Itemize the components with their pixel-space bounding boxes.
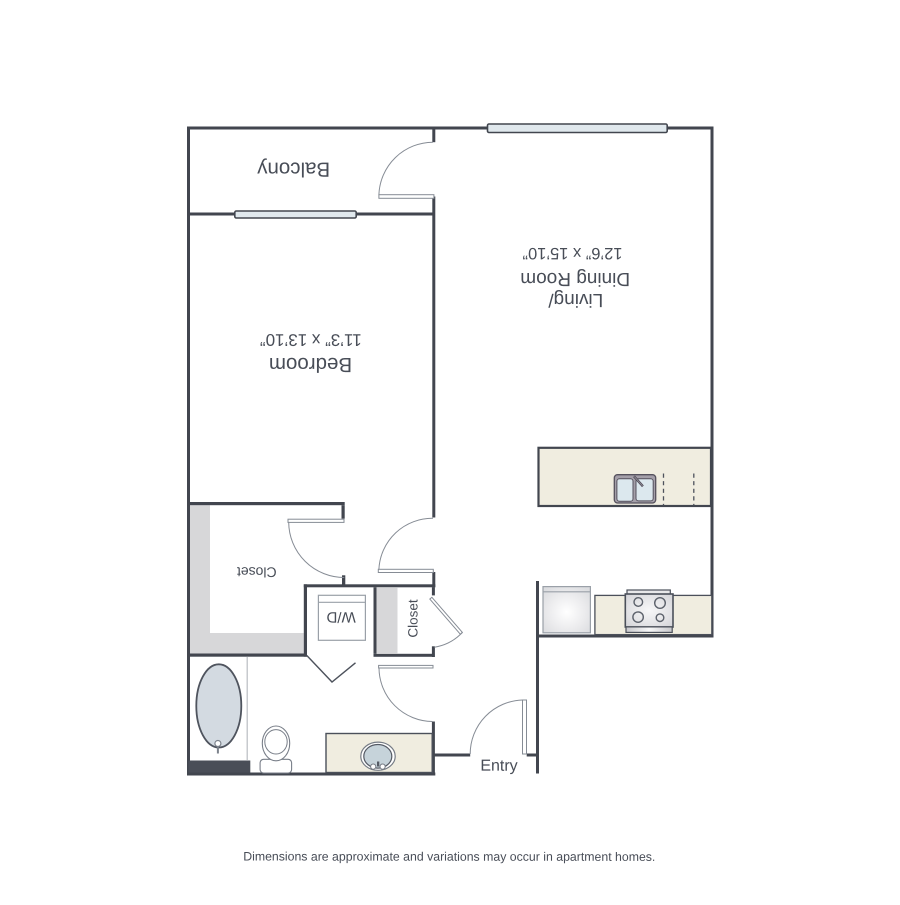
svg-text:Dining Room: Dining Room [520,268,630,289]
svg-text:11’3” x 13’10”: 11’3” x 13’10” [260,330,362,349]
svg-text:W/D: W/D [326,608,355,625]
svg-text:12’6” x 15’10”: 12’6” x 15’10” [523,244,623,262]
svg-text:Dimensions are approximate and: Dimensions are approximate and variation… [243,850,655,864]
svg-text:Closet: Closet [405,599,420,638]
svg-text:Bedroom: Bedroom [269,353,352,376]
svg-text:Entry: Entry [480,758,517,775]
svg-text:Living/: Living/ [548,289,604,310]
svg-text:Closet: Closet [237,564,277,580]
svg-text:Balcony: Balcony [256,158,330,181]
